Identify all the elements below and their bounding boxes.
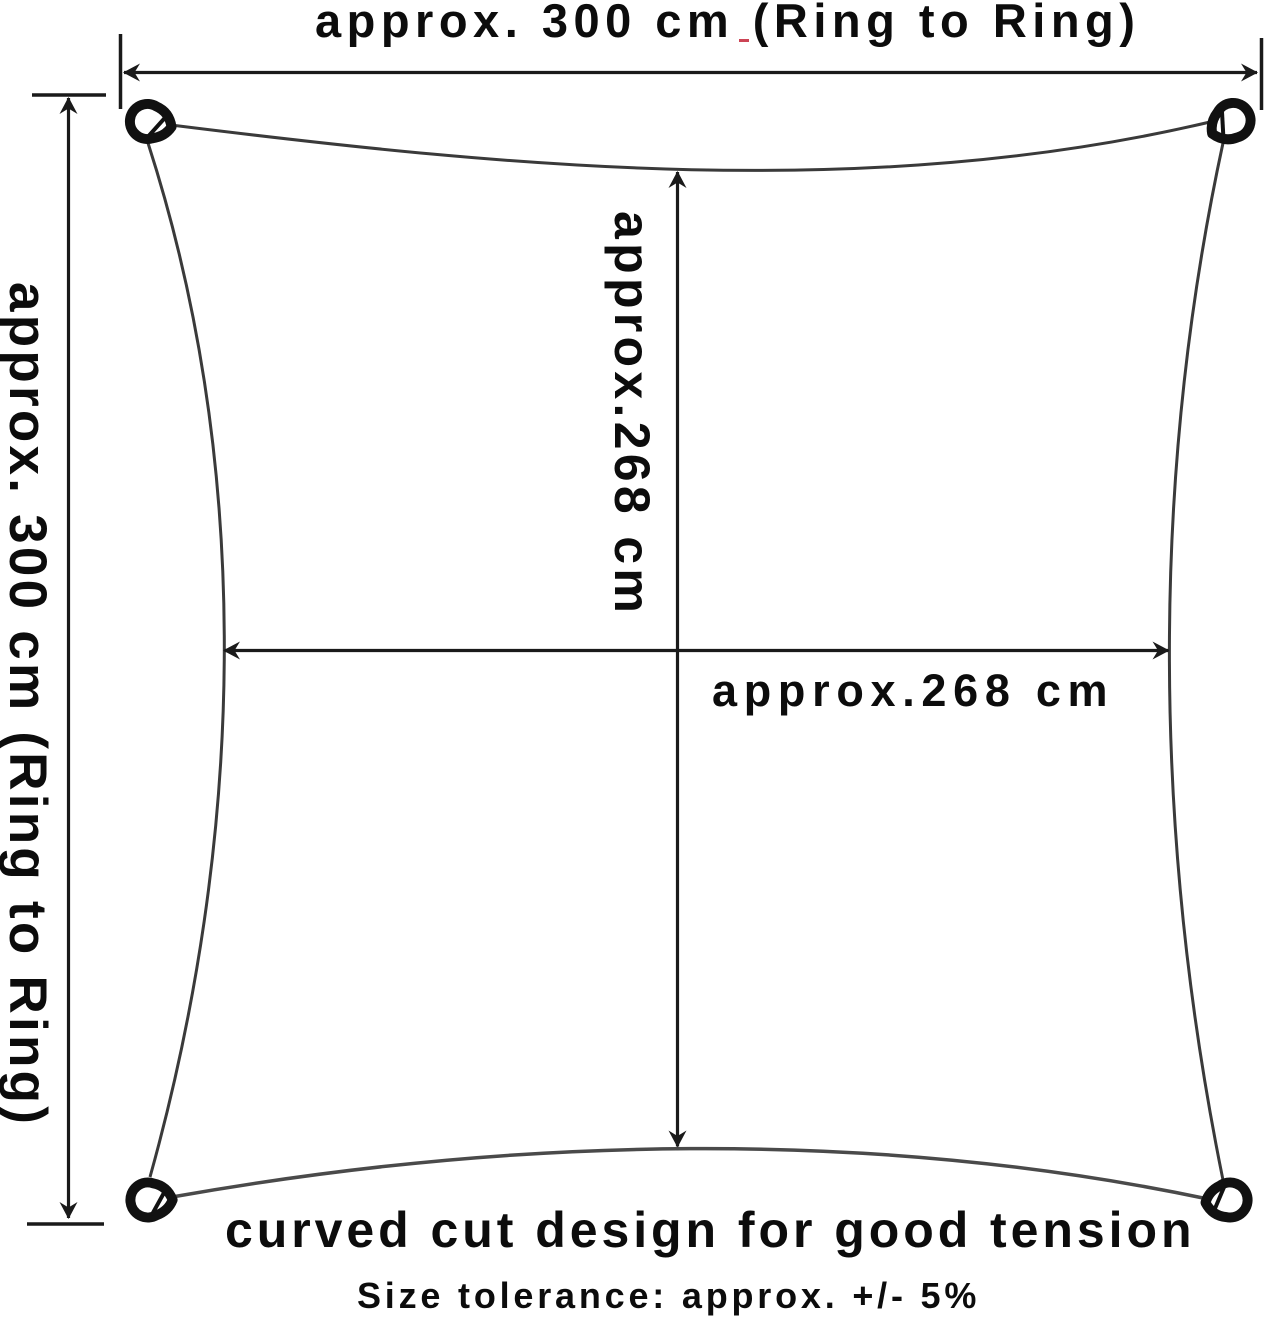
svg-text:approx.268 cm: approx.268 cm (604, 211, 660, 617)
svg-text:approx. 300 cm (Ring to Ring): approx. 300 cm (Ring to Ring) (315, 0, 1140, 47)
svg-text:approx.268 cm: approx.268 cm (712, 665, 1114, 716)
svg-text:Size tolerance: approx. +/- 5%: Size tolerance: approx. +/- 5% (357, 1275, 980, 1316)
svg-text:approx. 300 cm (Ring to Ring): approx. 300 cm (Ring to Ring) (0, 282, 57, 1127)
svg-text:curved cut design for good ten: curved cut design for good tension (225, 1202, 1195, 1258)
